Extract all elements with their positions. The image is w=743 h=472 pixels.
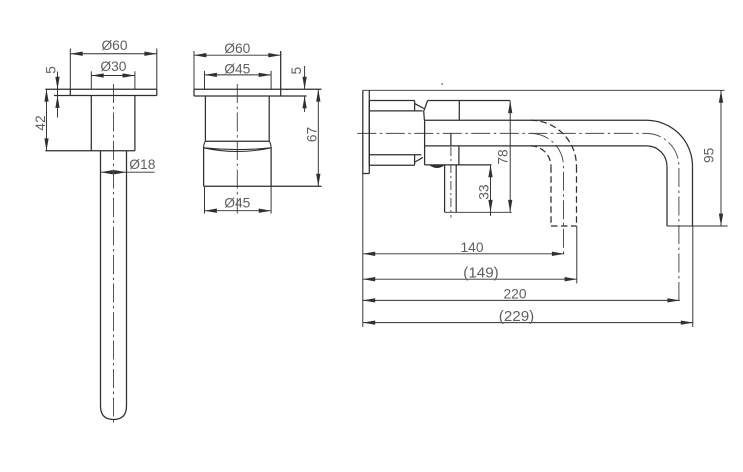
svg-text:Ø30: Ø30 — [100, 59, 126, 74]
svg-text:5: 5 — [289, 67, 304, 75]
svg-text:220: 220 — [503, 286, 526, 301]
svg-text:Ø45: Ø45 — [224, 61, 250, 76]
svg-text:Ø45: Ø45 — [224, 196, 250, 211]
svg-text:140: 140 — [460, 240, 483, 255]
svg-text:78: 78 — [496, 149, 511, 165]
svg-text:5: 5 — [44, 66, 59, 74]
svg-text:Ø18: Ø18 — [129, 157, 155, 172]
svg-text:95: 95 — [702, 147, 717, 163]
svg-text:42: 42 — [33, 115, 48, 130]
svg-text:Ø60: Ø60 — [224, 41, 250, 56]
svg-text:(229): (229) — [499, 308, 534, 325]
svg-text:Ø60: Ø60 — [101, 38, 127, 53]
svg-text:33: 33 — [476, 184, 491, 200]
svg-text:67: 67 — [305, 127, 320, 142]
svg-text:(149): (149) — [463, 265, 498, 282]
